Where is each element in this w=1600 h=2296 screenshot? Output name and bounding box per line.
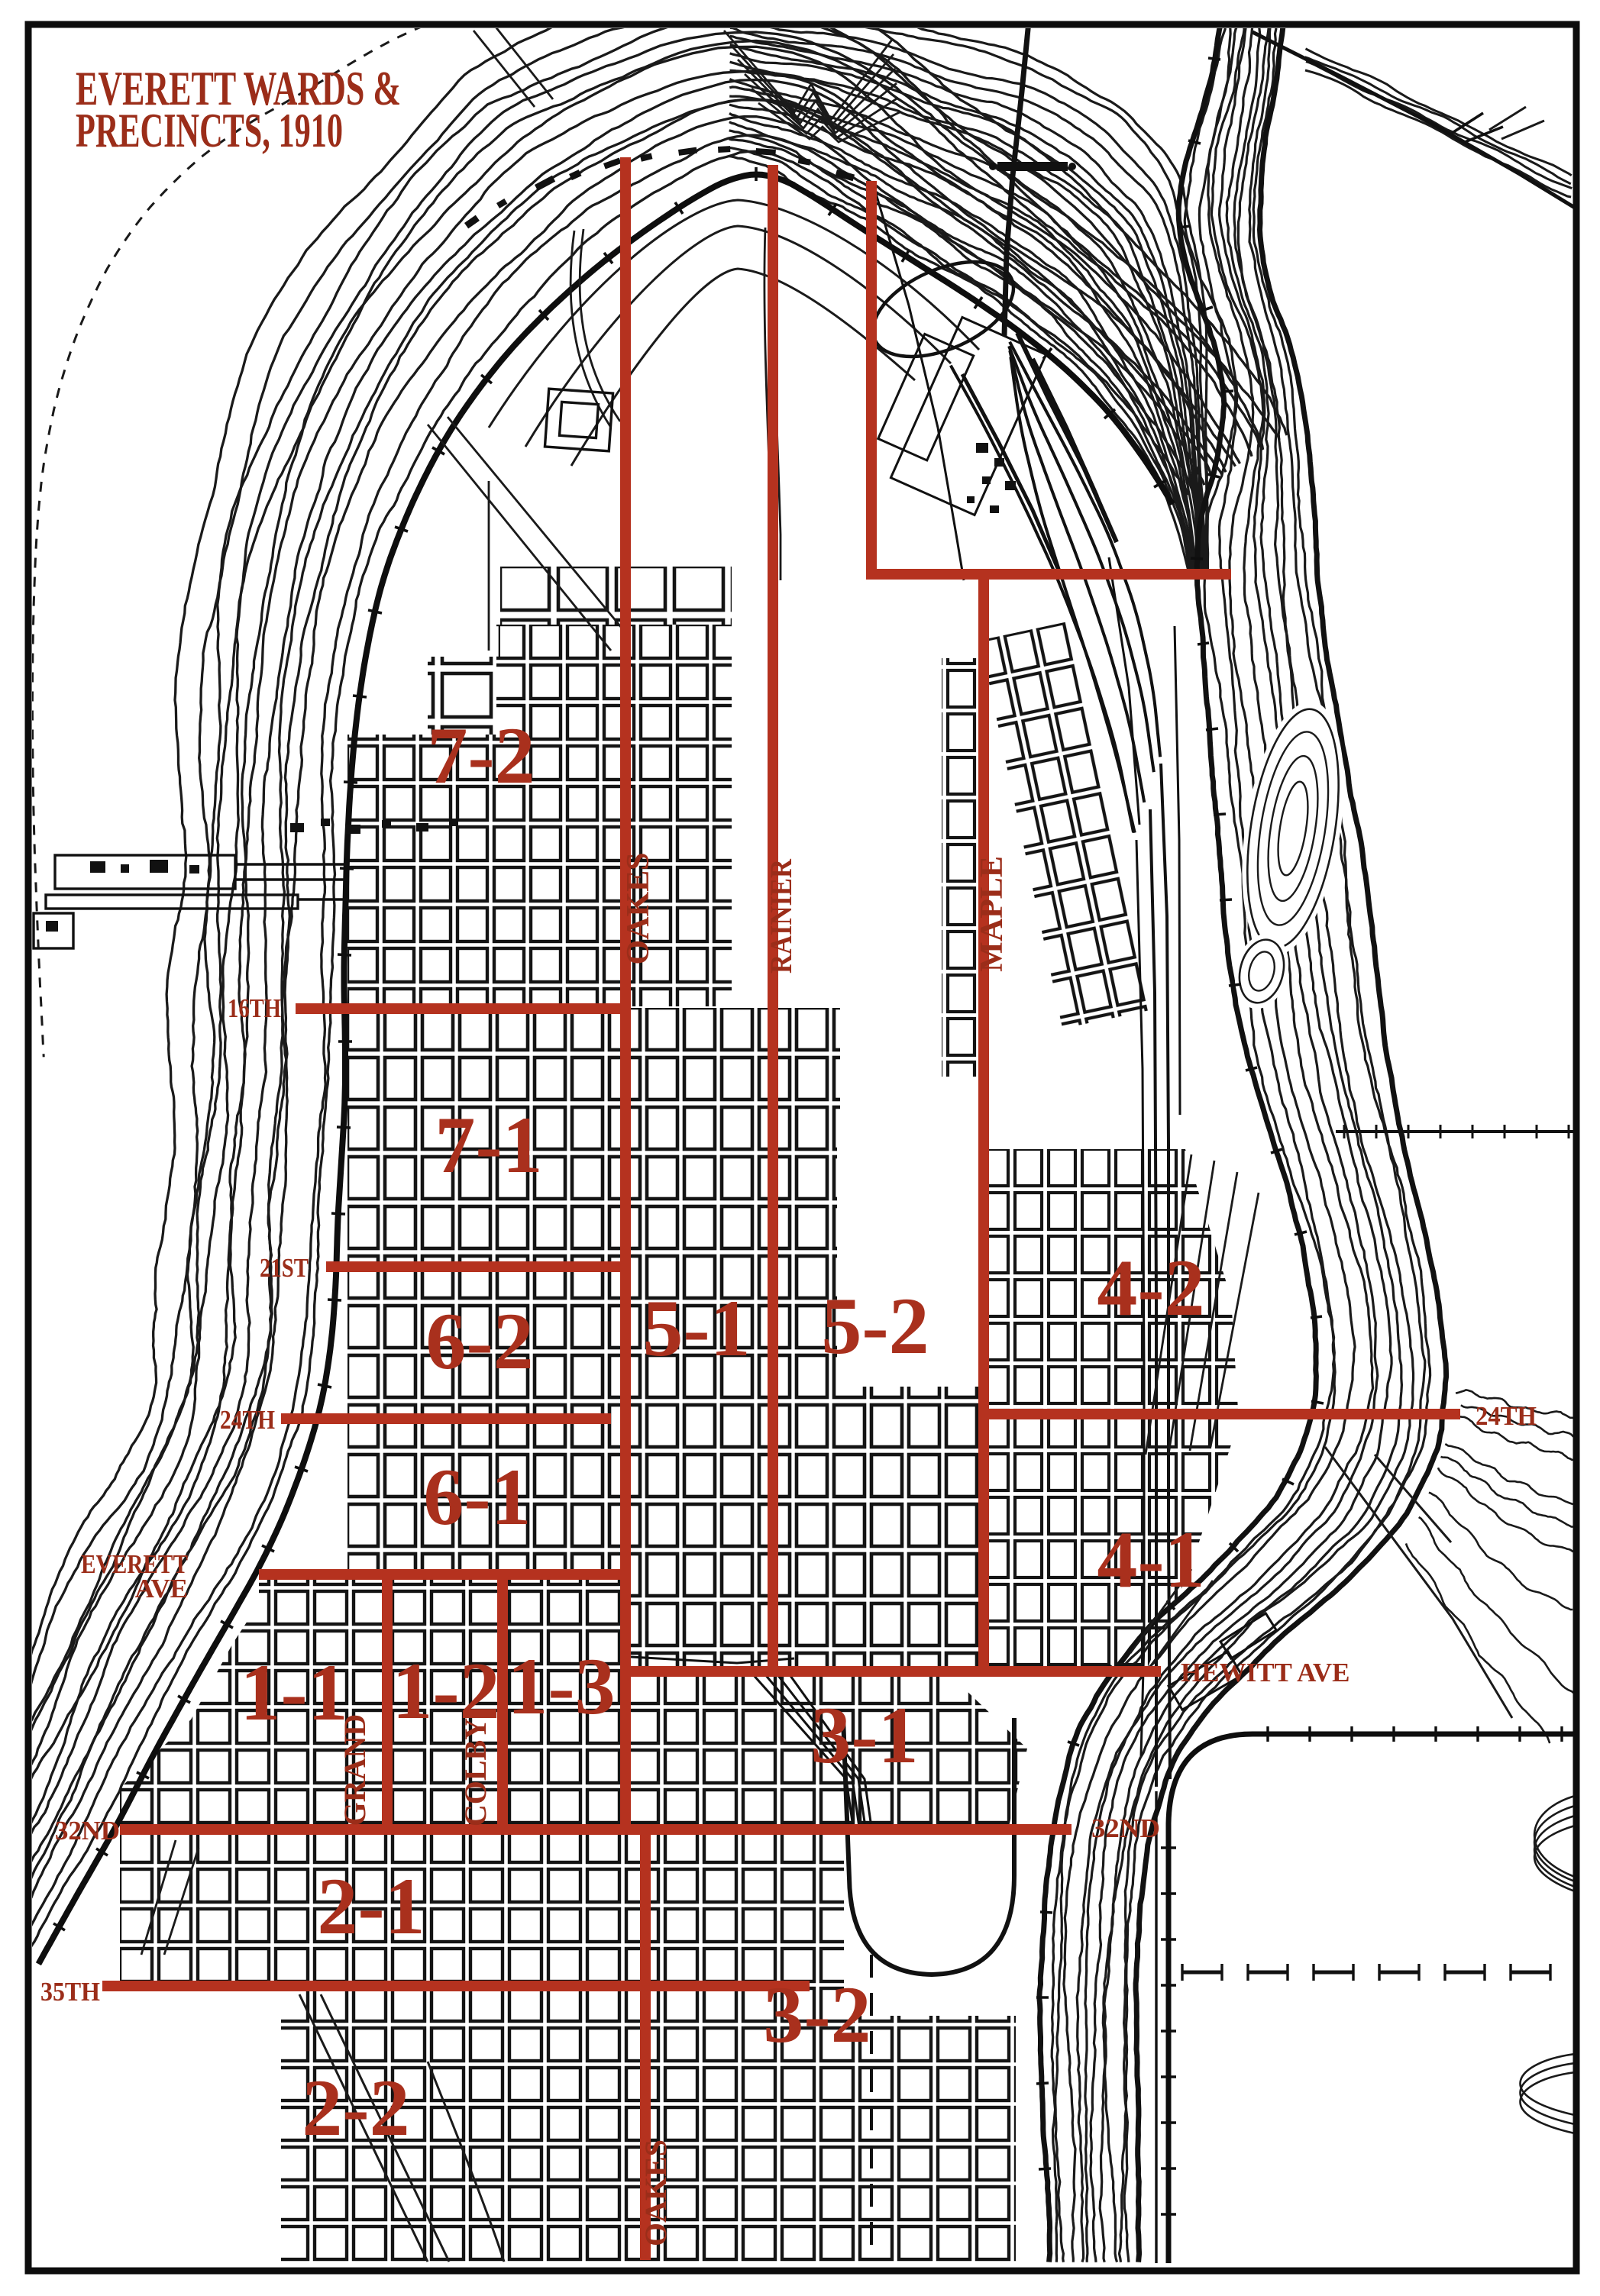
svg-text:RAINIER: RAINIER (764, 858, 798, 974)
svg-text:6-1: 6-1 (423, 1452, 531, 1542)
svg-text:HEWITT AVE: HEWITT AVE (1181, 1658, 1349, 1687)
svg-text:16TH: 16TH (228, 993, 281, 1023)
svg-text:1-1: 1-1 (240, 1648, 347, 1737)
svg-text:7-2: 7-2 (427, 711, 535, 800)
svg-text:3-2: 3-2 (763, 1970, 871, 2059)
svg-text:COLBY: COLBY (458, 1718, 493, 1826)
svg-text:5-1: 5-1 (642, 1284, 750, 1373)
svg-text:24TH: 24TH (220, 1405, 275, 1435)
svg-text:MAPLE: MAPLE (975, 856, 1010, 972)
svg-text:2-1: 2-1 (317, 1862, 425, 1951)
svg-text:3-1: 3-1 (810, 1691, 918, 1780)
svg-text:PRECINCTS, 1910: PRECINCTS, 1910 (76, 104, 343, 157)
svg-text:6-2: 6-2 (425, 1297, 533, 1386)
svg-text:21ST: 21ST (260, 1253, 309, 1283)
svg-text:GRAND: GRAND (338, 1714, 372, 1826)
svg-text:2-2: 2-2 (302, 2063, 409, 2152)
svg-text:24TH: 24TH (1476, 1401, 1537, 1431)
svg-text:5-2: 5-2 (821, 1281, 929, 1371)
svg-text:4-2: 4-2 (1097, 1243, 1204, 1332)
svg-text:1-3: 1-3 (507, 1642, 615, 1731)
svg-text:32ND: 32ND (1091, 1813, 1160, 1843)
svg-text:OAKES: OAKES (621, 852, 656, 964)
svg-text:OAKES: OAKES (638, 2139, 673, 2246)
svg-text:32ND: 32ND (55, 1816, 120, 1846)
svg-text:7-1: 7-1 (435, 1100, 542, 1190)
svg-text:AVE: AVE (135, 1574, 188, 1603)
svg-text:35TH: 35TH (40, 1977, 100, 2007)
svg-text:4-1: 4-1 (1097, 1515, 1204, 1604)
